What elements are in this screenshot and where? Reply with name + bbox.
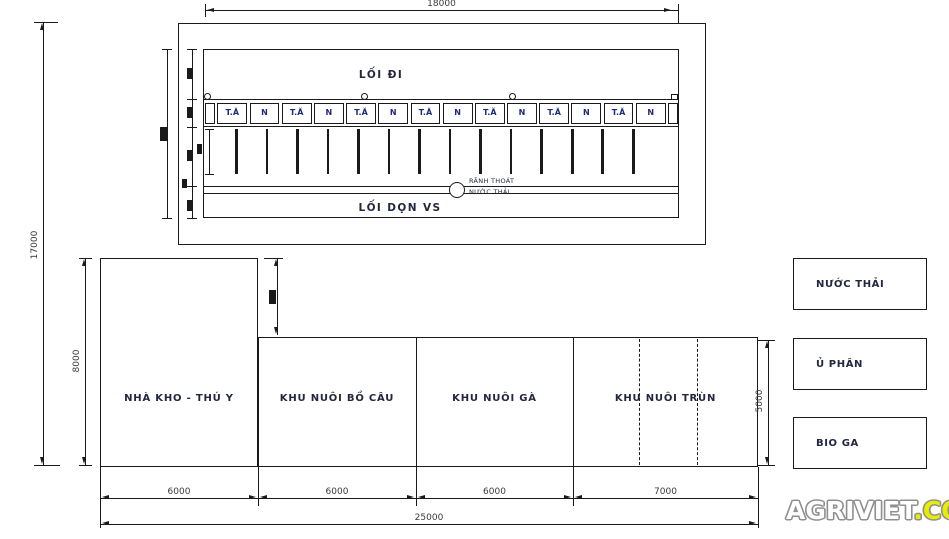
dim-tick [187, 127, 197, 128]
dim-graphic [100, 498, 758, 499]
facility-label: NƯỚC THẢI [816, 279, 884, 290]
stall-cell-row: T.ĂNT.ĂNT.ĂNT.ĂNT.ĂNT.ĂNT.ĂN [205, 103, 678, 124]
pen-partition-wall [296, 129, 299, 174]
dim-graphic [758, 467, 759, 528]
pigeon-area-label: KHU NUÔI BỒ CÂU [258, 393, 416, 404]
logo-name-text: AGRIVIET [786, 496, 913, 525]
pen-partition-wall [235, 129, 238, 174]
dim-tick [187, 186, 197, 187]
facility-box-biogas: BIO GA [793, 417, 927, 469]
dim-tick [187, 99, 197, 100]
dim-tick [162, 49, 172, 50]
dim-text-mark [269, 290, 276, 304]
back-walkway-label: LỐI DỌN VS [320, 202, 480, 214]
pen-partition-wall [601, 129, 604, 174]
pen-partition-wall [479, 129, 482, 174]
warehouse-building [100, 258, 258, 467]
dim-row-height-line [768, 340, 769, 465]
arrow-down-icon [274, 327, 278, 334]
water-cell: N [507, 103, 537, 124]
feed-cell: T.Ă [411, 103, 441, 124]
pen-partition-wall [540, 129, 543, 174]
facility-box-wastewater: NƯỚC THẢI [793, 258, 927, 310]
pen-partition-wall [449, 129, 452, 174]
dim-text-mark [187, 150, 192, 161]
dim-segment-4: 7000 [573, 487, 758, 497]
drain-line-top [203, 186, 679, 187]
dim-top-tick-left [205, 4, 206, 17]
dim-segment-2: 6000 [258, 487, 416, 497]
dim-tick [162, 218, 172, 219]
pen-partition-wall [571, 129, 574, 174]
dim-tick [79, 465, 92, 466]
pen-dim-tick [205, 174, 214, 175]
logo-tld-text: .COM [913, 496, 949, 525]
arrow-up-icon [765, 341, 769, 348]
dim-text-mark [160, 127, 167, 141]
dim-text-mark [182, 179, 187, 188]
dim-warehouse-height: 8000 [72, 331, 82, 391]
dim-site-height: 17000 [30, 215, 40, 275]
dim-offset-line [277, 258, 278, 335]
arrow-down-icon [82, 457, 86, 464]
house-left-dim-outer [167, 49, 168, 218]
arrow-left-icon [207, 8, 214, 12]
pen-partition-wall [510, 129, 513, 174]
dim-segment-3: 6000 [416, 487, 573, 497]
facility-label: BIO GA [816, 438, 859, 449]
feed-cell: T.Ă [475, 103, 505, 124]
house-left-dim-chain [192, 49, 193, 218]
warehouse-label: NHÀ KHO - THÚ Y [100, 393, 258, 404]
post-circle-icon [361, 93, 368, 100]
dim-text-mark [187, 68, 192, 79]
water-cell: N [571, 103, 601, 124]
feed-cell: T.Ă [539, 103, 569, 124]
site-plan-canvas: 18000 17000 LỐI ĐI T.ĂNT.ĂNT.ĂNT.ĂNT.ĂNT… [0, 0, 949, 539]
water-cell: N [636, 103, 666, 124]
water-cell: N [250, 103, 280, 124]
agriviet-logo: AGRIVIET.COM [786, 496, 949, 525]
stall-row-top-rail [203, 99, 679, 100]
drain-label-line2: NƯỚC THẢI [468, 188, 510, 196]
dim-top-line [205, 10, 678, 11]
pen-partition-wall [632, 129, 635, 174]
dim-text-mark [187, 107, 192, 118]
dim-warehouse-line [85, 258, 86, 465]
dim-site-height-line [43, 22, 44, 465]
pen-partition-wall [357, 129, 360, 174]
post-circle-icon [509, 93, 516, 100]
facility-box-compost: Ủ PHÂN [793, 338, 927, 390]
post-circle-icon [204, 93, 211, 100]
worm-area-label: KHU NUÔI TRÙN [573, 393, 758, 404]
post-square-icon [671, 94, 678, 100]
dim-segment-1: 6000 [100, 487, 258, 497]
dim-tick [758, 465, 775, 466]
dim-top-width: 18000 [205, 0, 678, 9]
dim-tick [187, 218, 197, 219]
drain-circle-icon [449, 182, 465, 198]
dim-site-height-tick-bottom [34, 465, 60, 466]
arrow-up-icon [40, 23, 44, 30]
drain-label-line1: RÃNH THOÁT [468, 177, 517, 187]
dim-graphic [100, 524, 758, 525]
front-walkway-label: LỐI ĐI [301, 69, 461, 81]
facility-label: Ủ PHÂN [816, 359, 863, 370]
dim-tick [187, 49, 197, 50]
stall-end-stub [668, 103, 678, 124]
arrow-right-icon [664, 8, 671, 12]
feed-cell: T.Ă [217, 103, 247, 124]
drain-line-bottom [203, 193, 679, 194]
arrow-up-icon [274, 259, 278, 266]
dim-text-mark [187, 200, 192, 211]
pen-partition-wall [388, 129, 391, 174]
pen-dim-text-mark [197, 144, 202, 154]
water-cell: N [443, 103, 473, 124]
water-cell: N [314, 103, 344, 124]
pen-dim-line [209, 129, 210, 174]
chicken-area-label: KHU NUÔI GÀ [416, 393, 573, 404]
dim-row-height: 5000 [755, 371, 765, 431]
pen-partition-wall [418, 129, 421, 174]
feed-cell: T.Ă [282, 103, 312, 124]
dim-site-height-tick-top [34, 22, 58, 23]
water-cell: N [378, 103, 408, 124]
stall-end-stub [205, 103, 215, 124]
arrow-down-icon [765, 457, 769, 464]
pen-dim-tick [205, 129, 214, 130]
pen-partition-wall [327, 129, 330, 174]
dim-total-width: 25000 [100, 513, 758, 523]
arrow-down-icon [40, 457, 44, 464]
pen-partition-wall [266, 129, 269, 174]
stall-row-bottom-rail [203, 126, 679, 127]
feed-cell: T.Ă [604, 103, 634, 124]
arrow-up-icon [82, 259, 86, 266]
feed-cell: T.Ă [346, 103, 376, 124]
dim-top-tick-right [678, 4, 679, 23]
